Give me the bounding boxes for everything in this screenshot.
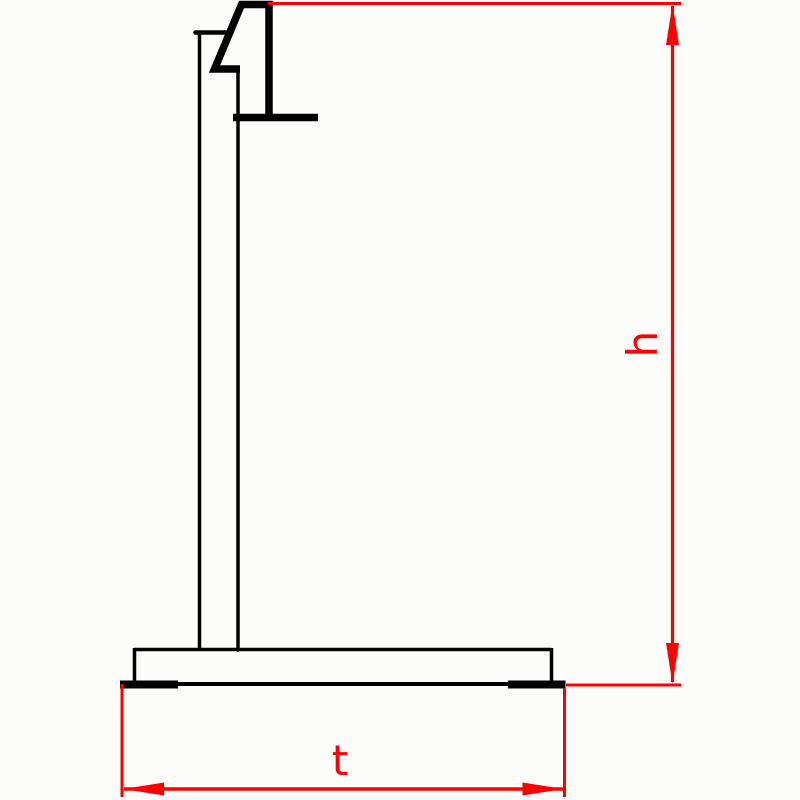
stand-side-view-drawing: h t: [0, 0, 800, 800]
h-arrow-down-icon: [666, 643, 679, 684]
t-dimension-label: t: [332, 736, 348, 785]
h-dimension-label: h: [618, 331, 667, 358]
t-arrow-left-icon: [123, 783, 164, 796]
t-arrow-right-icon: [523, 783, 564, 796]
technical-drawing-canvas: h t: [0, 0, 800, 800]
h-arrow-up-icon: [666, 4, 679, 45]
hook-profile-path: [215, 5, 270, 118]
